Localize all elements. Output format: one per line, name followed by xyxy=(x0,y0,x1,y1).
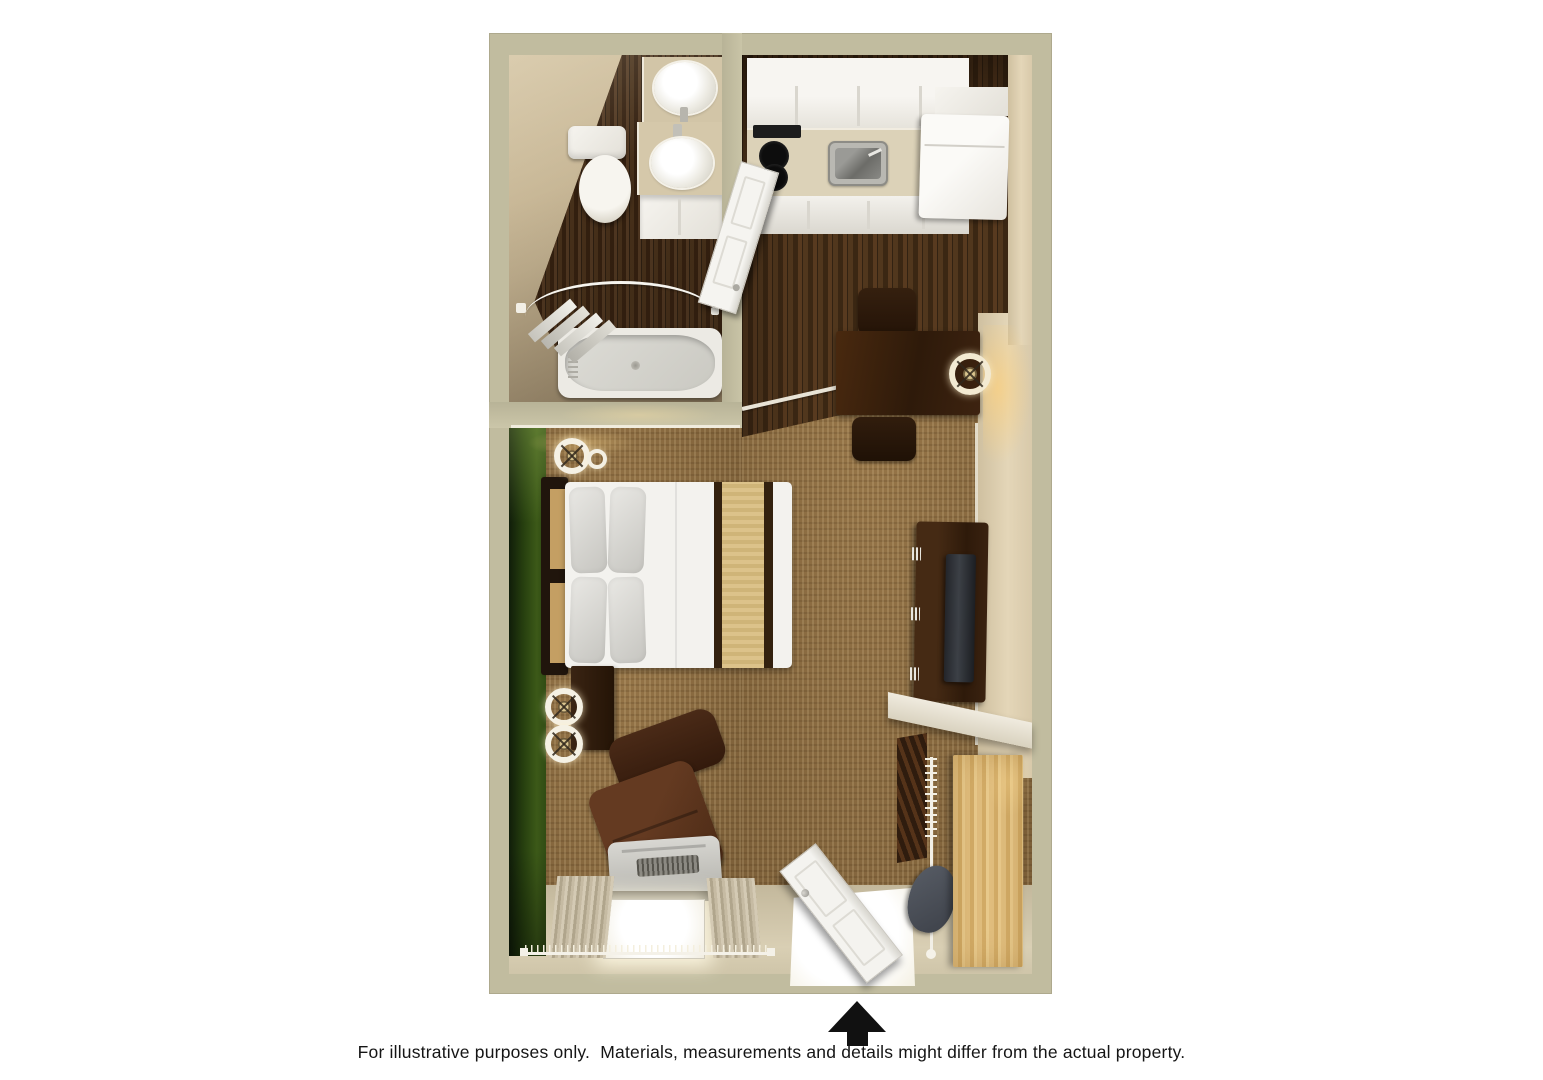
kitchen-sink xyxy=(828,141,888,186)
headboard-panel xyxy=(550,489,565,569)
headboard xyxy=(541,477,568,675)
pillow xyxy=(569,576,608,663)
tv xyxy=(944,554,976,683)
cabinet-seam xyxy=(678,199,681,235)
curtain-rod-endcap xyxy=(767,948,775,956)
bathroom xyxy=(509,55,722,402)
tv-console xyxy=(913,521,988,702)
cabinet-seam xyxy=(807,201,810,229)
vanity-counter-bottom xyxy=(637,122,722,195)
wall-edge-highlight xyxy=(511,425,740,428)
toilet-bowl xyxy=(579,155,631,223)
bathtub xyxy=(558,328,722,398)
headboard-panel xyxy=(550,583,565,663)
refrigerator xyxy=(919,114,1010,220)
runner-stripe xyxy=(714,482,722,668)
closet-rod-finial xyxy=(926,949,936,959)
toilet-tank xyxy=(568,126,626,159)
door-knob xyxy=(732,283,741,292)
door-panel xyxy=(712,235,748,289)
cabinet-above-refrigerator xyxy=(935,87,1008,116)
shower-rod-bracket xyxy=(516,303,526,313)
dining-chair xyxy=(858,288,916,335)
drawer-handle xyxy=(910,667,919,680)
cabinet-seam xyxy=(795,86,798,126)
cabinet-seam xyxy=(857,86,860,126)
curtain-rod-endcap xyxy=(520,948,528,956)
curtain-rod xyxy=(525,952,769,955)
desk xyxy=(953,755,1023,967)
door-panel xyxy=(730,176,766,230)
refrigerator-door-seam xyxy=(925,144,1005,148)
ac-top-slot xyxy=(622,844,706,853)
drawer-handle xyxy=(912,547,921,560)
floor-plan-page: For illustrative purposes only. Material… xyxy=(0,0,1543,1080)
kitchen-right-wall-face xyxy=(1008,55,1032,345)
cooktop-control-panel xyxy=(753,125,801,138)
bedside-lamp xyxy=(554,438,590,474)
floor-plan xyxy=(489,33,1052,994)
vanity-cabinet xyxy=(640,195,722,239)
caption: For illustrative purposes only. Material… xyxy=(0,1042,1543,1063)
ac-vent-grille xyxy=(636,855,699,877)
entrance-arrow xyxy=(828,1001,886,1032)
bed-runner xyxy=(722,482,764,668)
vanity-counter-top xyxy=(642,57,722,122)
hanging-clothes xyxy=(897,733,927,863)
bedside-lamp xyxy=(545,688,583,726)
sink-faucet xyxy=(680,107,688,123)
runner-stripe xyxy=(764,482,773,668)
pillow xyxy=(608,486,647,573)
lamp-shade-ring xyxy=(587,449,607,469)
cabinet-seam xyxy=(867,201,870,229)
ac-unit xyxy=(607,835,723,899)
bed xyxy=(565,482,792,668)
sheet-fold xyxy=(675,482,677,668)
sink-bowl xyxy=(651,138,713,188)
dining-chair xyxy=(852,417,916,461)
bathtub-drain xyxy=(631,361,640,370)
table-lamp xyxy=(949,353,991,395)
drawer-handle xyxy=(911,607,920,620)
pillow xyxy=(569,486,608,573)
pillow xyxy=(608,576,647,663)
